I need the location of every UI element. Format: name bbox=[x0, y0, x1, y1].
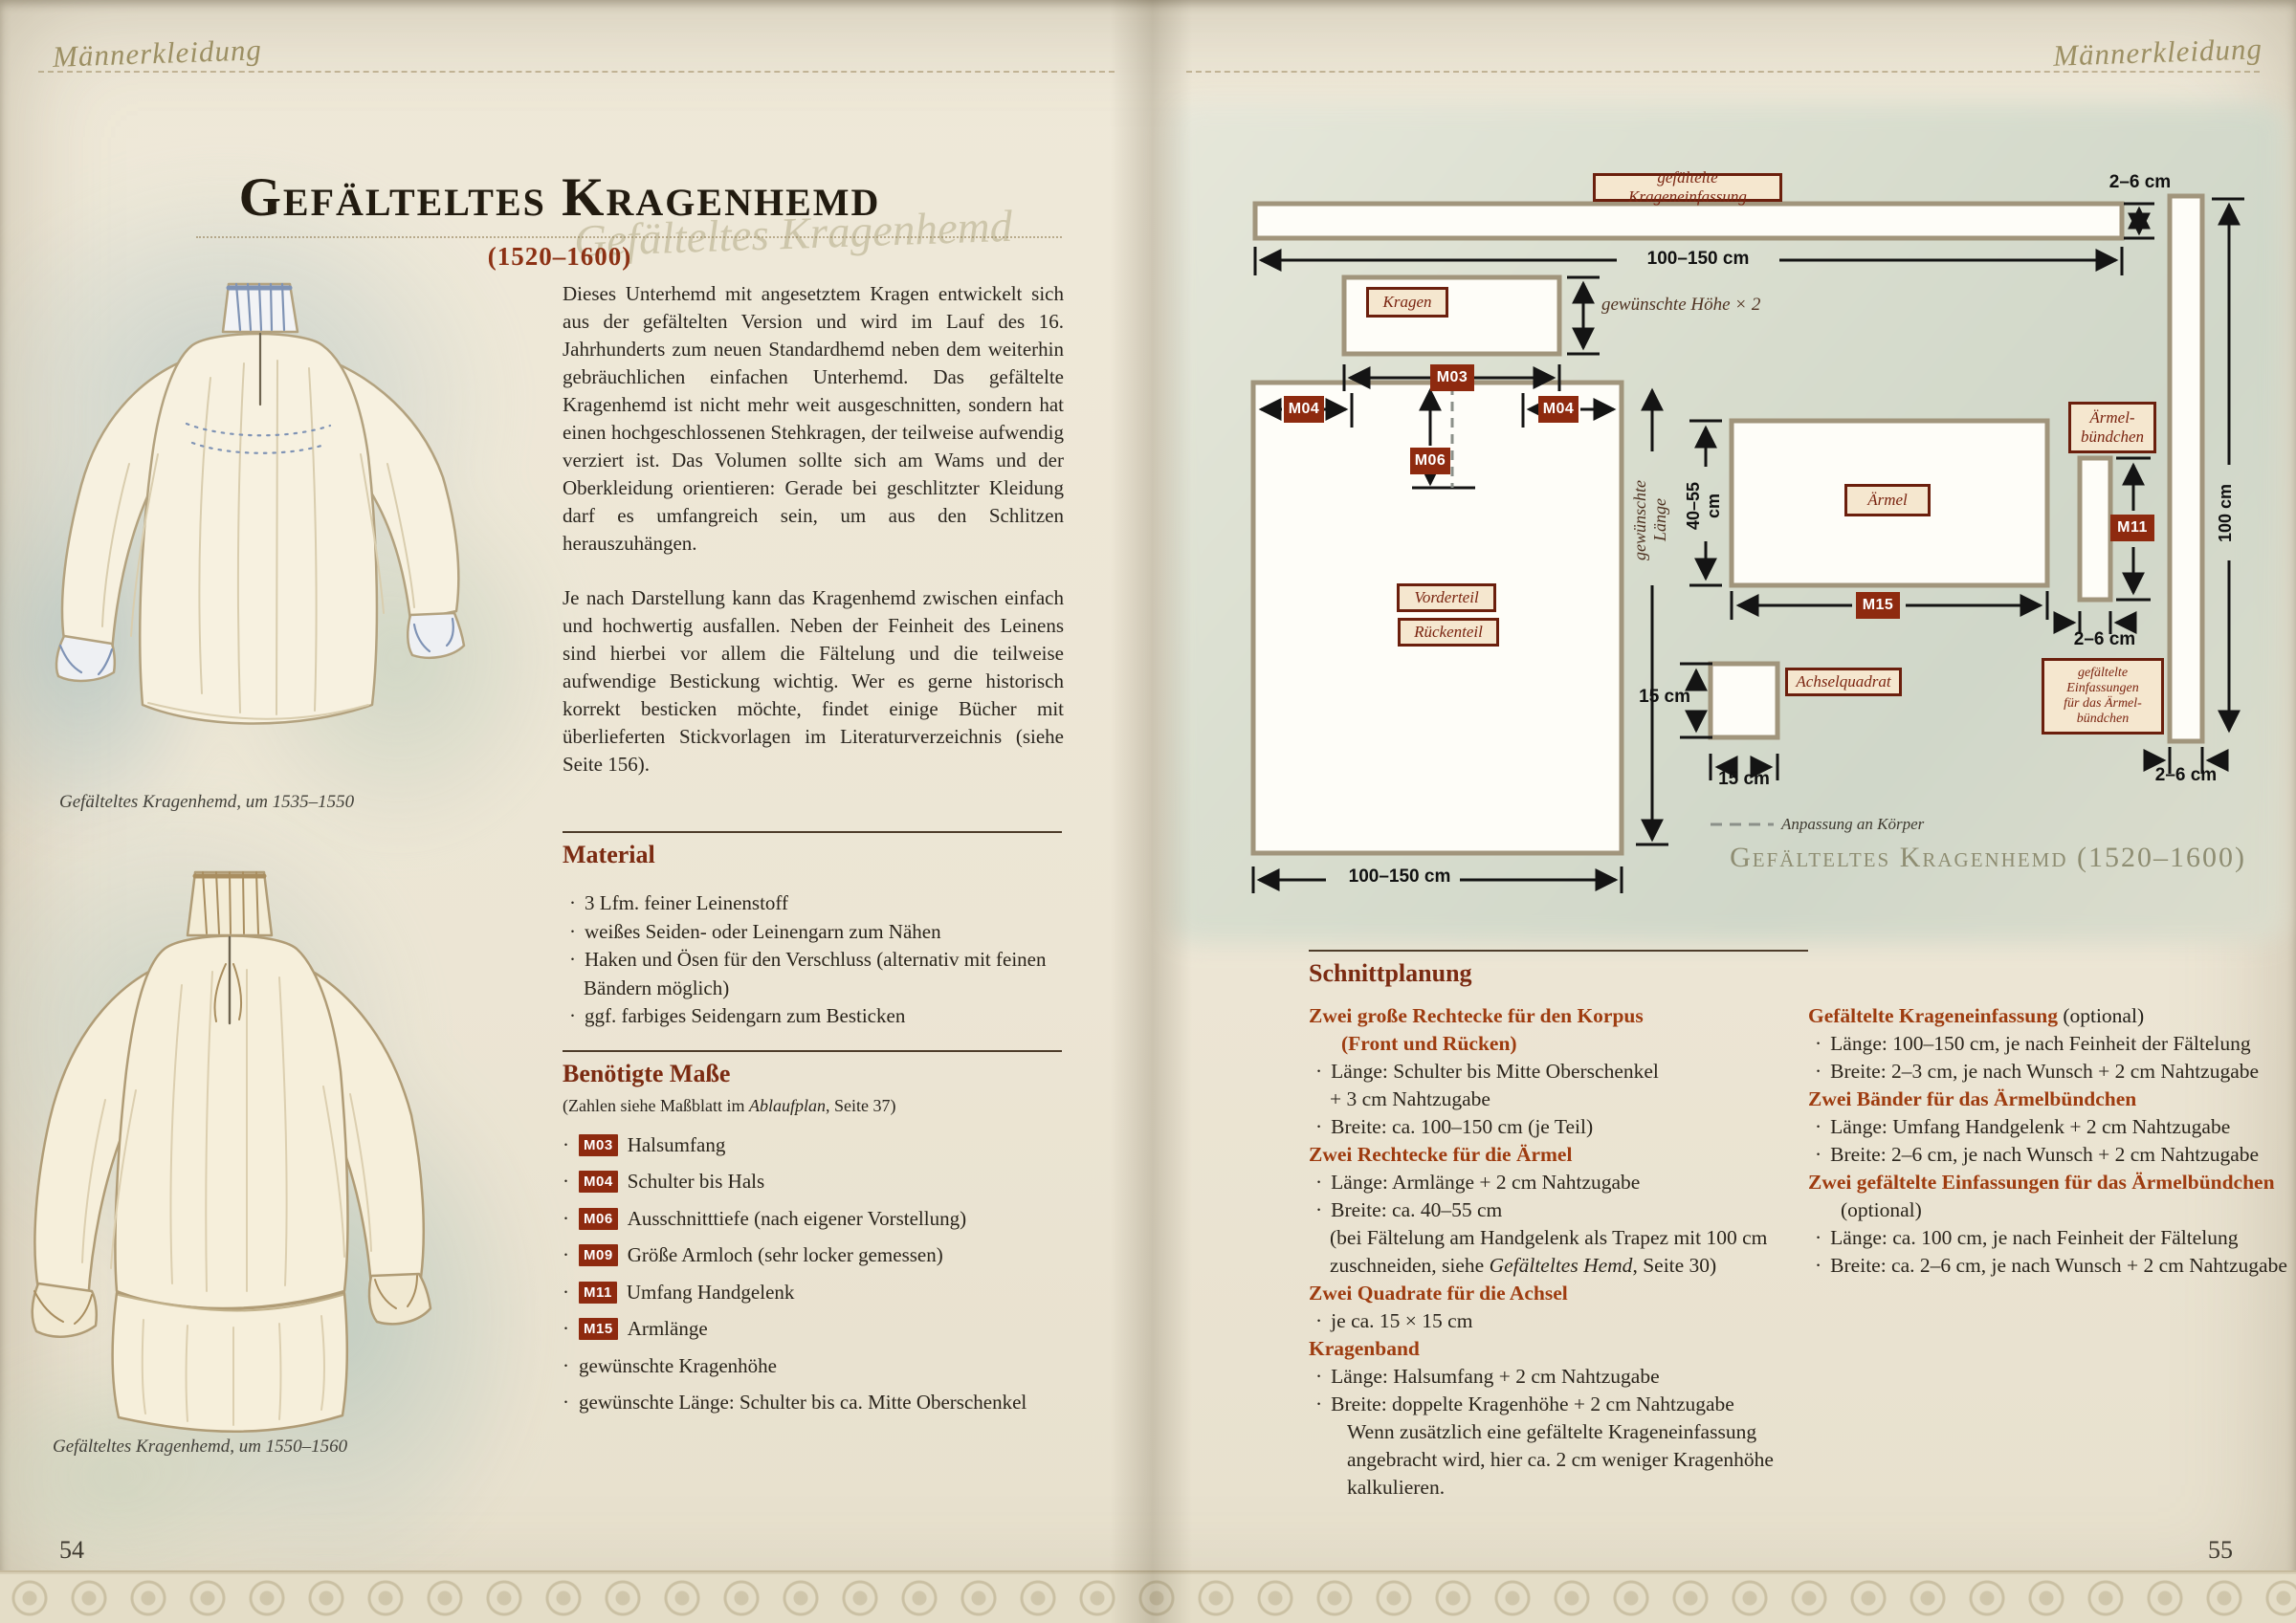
piece-label-einfassungen: gefältelteEinfassungenfür das Ärmel-bünd… bbox=[2042, 658, 2164, 735]
cut-bullet: Breite: 2–6 cm, je nach Wunsch + 2 cm Na… bbox=[1808, 1141, 2296, 1169]
cut-bullet: Länge: Halsumfang + 2 cm Nahtzugabe bbox=[1309, 1363, 1797, 1391]
measure-badge: M11 bbox=[579, 1282, 617, 1304]
measure-item: M11Umfang Handgelenk bbox=[563, 1274, 1079, 1311]
measures-note-post: , Seite 37) bbox=[826, 1096, 896, 1115]
chapter-script-left: Männerkleidung bbox=[52, 33, 262, 75]
measure-badge-m04-left: M04 bbox=[1284, 396, 1324, 423]
cut-subhead: Zwei Bänder für das Ärmelbündchen bbox=[1808, 1086, 2296, 1113]
cut-bullet: Breite: ca. 40–55 cm bbox=[1309, 1196, 1797, 1224]
measure-label: Ausschnitttiefe (nach eigener Vorstellun… bbox=[628, 1207, 966, 1231]
measures-note: (Zahlen siehe Maßblatt im Ablaufplan, Se… bbox=[563, 1096, 895, 1116]
cut-bullet: Breite: ca. 2–6 cm, je nach Wunsch + 2 c… bbox=[1808, 1252, 2296, 1280]
cut-bullet: Breite: 2–3 cm, je nach Wunsch + 2 cm Na… bbox=[1808, 1058, 2296, 1086]
measure-item: gewünschte Länge: Schulter bis ca. Mitte… bbox=[563, 1385, 1079, 1422]
cut-cont-pre: zuschneiden, siehe bbox=[1330, 1254, 1490, 1277]
note-kragen-height: gewünschte Höhe × 2 bbox=[1601, 295, 1812, 316]
dim-achsel-hoehe: 15 cm bbox=[1631, 687, 1690, 708]
book-spread: Männerkleidung Männerkleidung Gefältelte… bbox=[0, 0, 2296, 1623]
cutting-column-left: Zwei große Rechtecke für den Korpus (Fro… bbox=[1309, 1002, 1797, 1502]
measures-list: M03Halsumfang M04Schulter bis Hals M06Au… bbox=[563, 1127, 1079, 1421]
dim-top-width: 100–150 cm bbox=[1619, 249, 1777, 270]
cut-cont: Wenn zusätzlich eine gefältelte Kragenei… bbox=[1309, 1418, 1797, 1446]
material-item: weißes Seiden- oder Leinengarn zum Nähen bbox=[563, 918, 1064, 947]
cut-bullet: Länge: Armlänge + 2 cm Nahtzugabe bbox=[1309, 1169, 1797, 1196]
dim-buendchen-breite: 2–6 cm bbox=[2047, 629, 2162, 650]
dim-aermel-breite: 40–55 cm bbox=[1684, 469, 1724, 543]
cut-subhead: Gefältelte Krageneinfassung (optional) bbox=[1808, 1002, 2296, 1030]
material-list: 3 Lfm. feiner Leinenstoff weißes Seiden-… bbox=[563, 889, 1064, 1031]
measure-label: Umfang Handgelenk bbox=[627, 1281, 795, 1305]
cut-cont: + 3 cm Nahtzugabe bbox=[1309, 1086, 1797, 1113]
measure-label: gewünschte Länge: Schulter bis ca. Mitte… bbox=[579, 1391, 1027, 1415]
cut-cont: (bei Fältelung am Handgelenk als Trapez … bbox=[1309, 1224, 1797, 1252]
einfassungen-line-2: Einfassungen bbox=[2066, 681, 2138, 695]
piece-label-aermelbuendchen: Ärmel-bündchen bbox=[2068, 402, 2156, 453]
header-rule-right bbox=[1186, 71, 2260, 73]
piece-label-achselquadrat: Achselquadrat bbox=[1785, 668, 1902, 696]
diagram-caption: Gefälteltes Kragenhemd (1520–1600) bbox=[1626, 842, 2246, 874]
piece-label-kragen: Kragen bbox=[1366, 287, 1448, 318]
illustration-caption-1: Gefälteltes Kragenhemd, um 1535–1550 bbox=[59, 792, 354, 813]
intro-text: Dieses Unterhemd mit angesetztem Kragen … bbox=[563, 280, 1064, 805]
measure-item: M06Ausschnitttiefe (nach eigener Vorstel… bbox=[563, 1200, 1079, 1238]
measure-badge: M09 bbox=[579, 1244, 618, 1266]
measure-badge: M15 bbox=[579, 1318, 618, 1340]
cut-cont: zuschneiden, siehe Gefälteltes Hemd, Sei… bbox=[1309, 1252, 1797, 1280]
measures-rule bbox=[563, 1050, 1062, 1052]
measure-label: gewünschte Kragenhöhe bbox=[579, 1354, 777, 1378]
material-heading: Material bbox=[563, 841, 655, 869]
page-number-right: 55 bbox=[2208, 1536, 2233, 1565]
measures-heading: Benötigte Maße bbox=[563, 1060, 730, 1088]
measures-note-pre: (Zahlen siehe Maßblatt im bbox=[563, 1096, 749, 1115]
buendchen-line: Ärmel-bündchen bbox=[2081, 408, 2144, 446]
cut-bullet: je ca. 15 × 15 cm bbox=[1309, 1307, 1797, 1335]
cut-subhead: Zwei große Rechtecke für den Korpus bbox=[1309, 1002, 1797, 1030]
cut-cont-post: , Seite 30) bbox=[1632, 1254, 1716, 1277]
measure-label: Armlänge bbox=[628, 1317, 708, 1341]
cutting-heading: Schnittplanung bbox=[1309, 959, 1472, 988]
einfassungen-line-1: gefältelte bbox=[2078, 666, 2128, 680]
cut-cont: angebracht wird, hier ca. 2 cm weniger K… bbox=[1309, 1446, 1797, 1474]
piece-label-aermel: Ärmel bbox=[1844, 484, 1931, 516]
piece-label-vorderteil: Vorderteil bbox=[1397, 583, 1496, 612]
piece-label-rueckenteil: Rückenteil bbox=[1398, 618, 1499, 647]
cutting-rule bbox=[1309, 950, 1808, 952]
measure-item: M15Armlänge bbox=[563, 1311, 1079, 1349]
cut-bullet: Länge: 100–150 cm, je nach Feinheit der … bbox=[1808, 1030, 2296, 1058]
dim-achsel-breite: 15 cm bbox=[1687, 769, 1801, 790]
piece-label-krageneinfassung: gefältelte Krageneinfassung bbox=[1593, 173, 1782, 202]
cut-bullet: Länge: Schulter bis Mitte Oberschenkel bbox=[1309, 1058, 1797, 1086]
einfassungen-lines: gefältelteEinfassungenfür das Ärmel-bünd… bbox=[2064, 666, 2142, 727]
cut-subhead: Kragenband bbox=[1309, 1335, 1797, 1363]
cut-bullet: Breite: ca. 100–150 cm (je Teil) bbox=[1309, 1113, 1797, 1141]
header-rule-left bbox=[38, 71, 1115, 73]
material-rule bbox=[563, 831, 1062, 833]
cut-subhead-cont: (Front und Rücken) bbox=[1309, 1030, 1797, 1058]
measure-item: M04Schulter bis Hals bbox=[563, 1164, 1079, 1201]
dim-streifen-laenge: 100 cm bbox=[2216, 471, 2236, 555]
dim-streifen-breite: 2–6 cm bbox=[2129, 765, 2243, 786]
ornament-border bbox=[0, 1570, 2296, 1623]
measure-badge-m03: M03 bbox=[1430, 364, 1474, 391]
measure-label: Schulter bis Hals bbox=[628, 1170, 764, 1194]
illustration-caption-2: Gefälteltes Kragenhemd, um 1550–1560 bbox=[53, 1437, 347, 1458]
buendchen-line-2: bündchen bbox=[2081, 428, 2144, 446]
dim-body-width: 100–150 cm bbox=[1330, 866, 1469, 888]
cut-subhead-main: Gefältelte Krageneinfassung bbox=[1808, 1004, 2058, 1027]
einfassungen-line-3: für das Ärmel- bbox=[2064, 696, 2142, 711]
dim-top-height: 2–6 cm bbox=[2097, 172, 2183, 193]
material-item: Haken und Ösen für den Verschluss (alter… bbox=[563, 946, 1064, 1002]
measure-item: gewünschte Kragenhöhe bbox=[563, 1348, 1079, 1385]
measure-badge-m06: M06 bbox=[1410, 448, 1450, 474]
measure-badge-m04-right: M04 bbox=[1538, 396, 1578, 423]
cut-cont: kalkulieren. bbox=[1309, 1474, 1797, 1502]
legend-anpassung: Anpassung an Körper bbox=[1781, 815, 1963, 834]
cut-subhead: Zwei Quadrate für die Achsel bbox=[1309, 1280, 1797, 1307]
note-body-length: gewünschte Länge bbox=[1630, 457, 1670, 583]
intro-paragraph-2: Je nach Darstellung kann das Kragenhemd … bbox=[563, 584, 1064, 779]
intro-paragraph-1: Dieses Unterhemd mit angesetztem Kragen … bbox=[563, 280, 1064, 558]
shirt-illustration-1 bbox=[14, 234, 497, 808]
material-item: ggf. farbiges Seidengarn zum Besticken bbox=[563, 1002, 1064, 1031]
cut-cont-italic: Gefälteltes Hemd bbox=[1490, 1254, 1633, 1277]
measures-note-italic: Ablaufplan bbox=[749, 1096, 826, 1115]
measure-item: M03Halsumfang bbox=[563, 1127, 1079, 1164]
page-title: Gefälteltes Kragenhemd bbox=[239, 167, 881, 228]
einfassungen-line-4: bündchen bbox=[2077, 712, 2129, 726]
measure-badge-m15: M15 bbox=[1856, 592, 1900, 619]
measure-label: Größe Armloch (sehr locker gemessen) bbox=[628, 1243, 943, 1267]
page-number-left: 54 bbox=[59, 1536, 84, 1565]
cutting-column-right: Gefältelte Krageneinfassung (optional) L… bbox=[1808, 1002, 2296, 1280]
cut-subhead: Zwei Rechtecke für die Ärmel bbox=[1309, 1141, 1797, 1169]
measure-label: Halsumfang bbox=[628, 1133, 726, 1157]
cut-optional: (optional) bbox=[1808, 1196, 2296, 1224]
measure-badge: M04 bbox=[579, 1171, 618, 1193]
measure-badge: M06 bbox=[579, 1208, 618, 1230]
measure-badge-m11: M11 bbox=[2110, 515, 2154, 541]
measure-badge: M03 bbox=[579, 1134, 618, 1156]
cut-bullet: Länge: Umfang Handgelenk + 2 cm Nahtzuga… bbox=[1808, 1113, 2296, 1141]
chapter-script-right: Männerkleidung bbox=[1994, 32, 2263, 76]
shirt-illustration-2 bbox=[0, 842, 450, 1463]
buendchen-line-1: Ärmel- bbox=[2089, 408, 2134, 427]
cut-bullet: Breite: doppelte Kragenhöhe + 2 cm Nahtz… bbox=[1309, 1391, 1797, 1418]
measure-item: M09Größe Armloch (sehr locker gemessen) bbox=[563, 1238, 1079, 1275]
material-item: 3 Lfm. feiner Leinenstoff bbox=[563, 889, 1064, 918]
cut-subhead: Zwei gefältelte Einfassungen für das Ärm… bbox=[1808, 1169, 2296, 1196]
cut-bullet: Länge: ca. 100 cm, je nach Feinheit der … bbox=[1808, 1224, 2296, 1252]
cut-subhead-optional: (optional) bbox=[2058, 1004, 2144, 1027]
